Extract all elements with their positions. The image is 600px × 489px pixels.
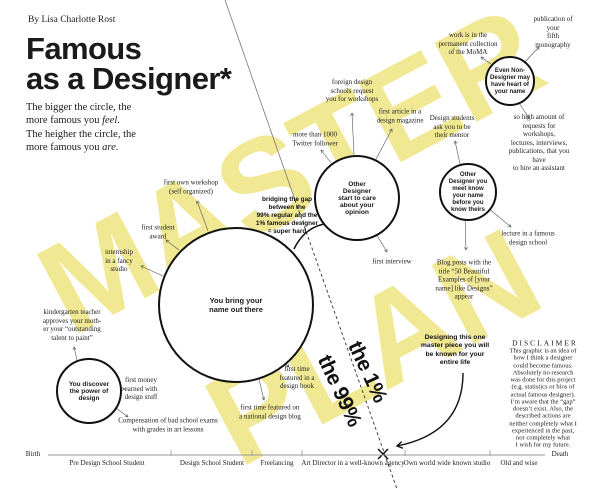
timeline-stage-art-director: Art Director in a well-known agency — [301, 459, 404, 467]
milestone-blog-posts-title: Blog posts with the title “50 Beautiful … — [435, 259, 492, 302]
milestone-fifth-monography: publication of your fifth monography — [530, 15, 577, 49]
milestone-design-students-mentor: Design students ask you to be their ment… — [430, 114, 475, 140]
timeline-stage-old-and-wise: Old and wise — [501, 459, 538, 467]
disclaimer-heading: DISCLAIMER — [512, 339, 578, 348]
milestone-kindergarten-teacher: kindergarten teacher approves your moth-… — [43, 308, 101, 342]
milestone-internship: internship in a fancy studio — [105, 248, 133, 274]
milestone-foreign-schools: foreign design schools request you for w… — [326, 78, 379, 104]
x-marker — [378, 449, 388, 459]
legend-text: The bigger the circle, the more famous y… — [26, 101, 136, 154]
milestone-first-money: first money earned with design stuff — [125, 376, 158, 402]
masterpiece-note: Designing this one master piece you will… — [421, 334, 489, 368]
disclaimer-body: This graphic is an idea of how I think a… — [488, 347, 598, 449]
circle-designers-care-opinion: Other Designer start to care about your … — [314, 155, 400, 241]
page-title: Famous as a Designer* — [26, 34, 231, 94]
timeline-stage-pre-design-school: Pre Design School Student — [69, 459, 144, 467]
timeline-stage-freelancing: Freelancing — [260, 459, 293, 467]
milestone-first-student-award: first student award — [141, 223, 174, 240]
circle-discover-power-label: You discover the power of design — [69, 381, 109, 402]
timeline-end-label: Death — [552, 450, 569, 458]
title-line-2: as a Designer* — [26, 64, 231, 94]
bridging-gap-note: bridging the gap between the 99% regular… — [256, 196, 318, 236]
timeline-stage-design-school: Design School Student — [180, 459, 244, 467]
milestone-moma-collection: work is in the permanent collection of t… — [439, 31, 498, 57]
infographic-poster: MASTER PLAN By Lisa Charlotte Rost Famou… — [0, 0, 600, 489]
byline: By Lisa Charlotte Rost — [28, 15, 115, 25]
milestone-featured-design-book: first time featured in a design book — [280, 365, 315, 391]
milestone-twitter-followers: more than 1000 Twitter follower — [292, 130, 338, 147]
timeline-start-label: Birth — [26, 450, 40, 458]
milestone-lecture-famous-school: lecture in a famous design school — [501, 229, 554, 246]
milestone-hire-assistant: so high amount of requests for workshops… — [509, 113, 570, 173]
circle-bring-name-out: You bring your name out there — [158, 227, 314, 383]
title-line-1: Famous — [26, 34, 231, 64]
circle-discover-power: You discover the power of design — [56, 358, 122, 424]
circle-non-designers-know-label: Even Non- Designer may have heart of you… — [490, 67, 530, 95]
circle-designers-know-name-label: Other Designer you meet know your name b… — [449, 171, 488, 213]
milestone-compensation-exams: Compensation of bad school exams with gr… — [118, 416, 218, 433]
milestone-first-article: first article in a design magazine — [377, 107, 424, 124]
circle-designers-know-name: Other Designer you meet know your name b… — [439, 163, 497, 221]
circle-bring-name-out-label: You bring your name out there — [209, 296, 263, 314]
circle-designers-care-opinion-label: Other Designer start to care about your … — [338, 181, 376, 216]
timeline-axis — [48, 450, 545, 456]
timeline-stage-own-studio: Own world wide known studio — [404, 459, 491, 467]
circle-non-designers-know: Even Non- Designer may have heart of you… — [485, 56, 535, 106]
milestone-first-interview: first interview — [372, 258, 411, 267]
masterpiece-arrow — [397, 373, 463, 446]
milestone-featured-design-blog: first time featured on a national design… — [239, 403, 301, 420]
milestone-first-own-workshop: first own workshop (self organized) — [164, 178, 218, 195]
